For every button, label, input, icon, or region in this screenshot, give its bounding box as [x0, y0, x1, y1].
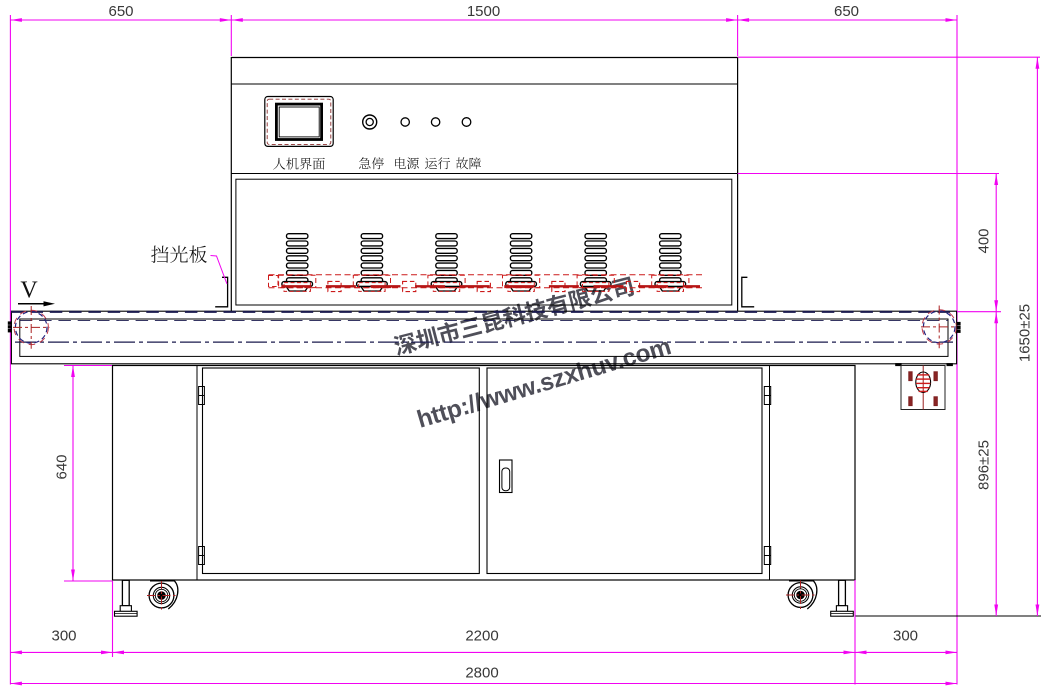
- svg-text:2800: 2800: [465, 665, 498, 682]
- svg-text:300: 300: [893, 628, 918, 645]
- svg-text:896±25: 896±25: [976, 440, 993, 490]
- svg-text:2200: 2200: [465, 628, 498, 645]
- svg-text:300: 300: [51, 628, 76, 645]
- svg-text:640: 640: [54, 454, 71, 479]
- svg-text:650: 650: [108, 3, 133, 20]
- svg-text:V: V: [20, 278, 38, 304]
- svg-text:1500: 1500: [467, 3, 500, 20]
- svg-text:400: 400: [976, 228, 993, 253]
- svg-text:1650±25: 1650±25: [1017, 304, 1034, 362]
- svg-text:650: 650: [834, 3, 859, 20]
